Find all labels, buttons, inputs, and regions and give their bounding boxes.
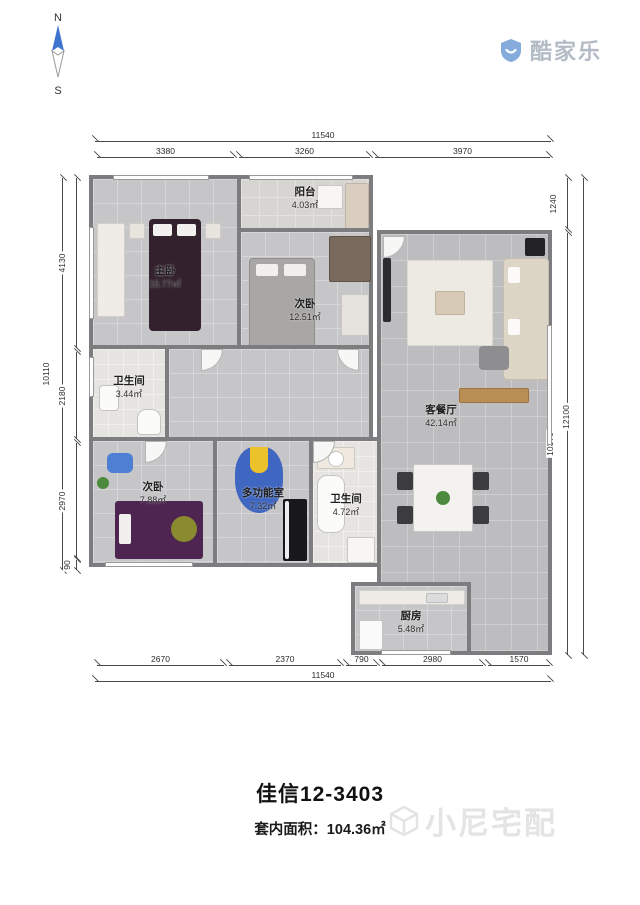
kitchen-sink: [426, 593, 448, 603]
wardrobe: [97, 223, 125, 317]
plan-title: 佳信12-3403: [0, 778, 640, 808]
kujiale-shield-icon: [498, 37, 524, 63]
dining-chair: [473, 472, 489, 490]
room-bathroom-1: 卫生间 3.44㎡: [89, 345, 169, 441]
dim-bottom-segment-4: 1570: [488, 665, 550, 666]
desk: [341, 294, 369, 336]
blanket: [171, 516, 197, 542]
bed: [149, 219, 201, 331]
room-master-bedroom: 主卧 15.77㎡: [89, 175, 241, 349]
dim-right-total: 12100: [583, 178, 584, 655]
ottoman: [479, 346, 509, 370]
dim-right-segment-1: 10370: [567, 233, 568, 655]
tv: [383, 258, 391, 322]
sink: [99, 385, 119, 411]
beanbag: [235, 447, 283, 513]
nightstand: [205, 223, 221, 239]
coffee-table: [435, 291, 465, 315]
window: [547, 325, 552, 445]
compass: N S: [46, 12, 70, 97]
room-area: 42.14㎡: [391, 418, 491, 430]
sofa: [503, 258, 549, 380]
piano: [283, 499, 307, 561]
fridge: [359, 620, 383, 650]
dim-top-total: 11540: [95, 141, 551, 142]
kitchen-counter: [359, 590, 465, 605]
pillow: [177, 224, 196, 236]
compass-north-label: N: [46, 12, 70, 24]
dim-bottom-total: 11540: [95, 681, 551, 682]
window: [249, 175, 353, 180]
plant: [97, 477, 109, 489]
dining-chair: [397, 472, 413, 490]
beanbag-stripe: [250, 447, 268, 473]
dining-chair: [473, 506, 489, 524]
dim-top-segment-0: 3380: [97, 157, 234, 158]
brand-logo: 酷家乐: [498, 34, 602, 66]
dim-left-segment-3: 90: [76, 560, 77, 570]
room-kitchen: 厨房 5.48㎡: [351, 582, 471, 655]
room-balcony: 阳台 4.03㎡: [237, 175, 373, 232]
pillow: [256, 264, 278, 276]
pillow: [284, 264, 306, 276]
window: [105, 562, 193, 567]
dim-bottom-segment-1: 2370: [229, 665, 341, 666]
pillow: [508, 319, 520, 335]
nightstand: [129, 223, 145, 239]
bathtub: [317, 475, 345, 533]
window: [381, 650, 451, 655]
dim-left-segment-2: 2970: [76, 443, 77, 558]
wardrobe: [329, 236, 371, 282]
plan-area-label: 套内面积：104.36㎡: [0, 818, 640, 839]
dim-bottom-segment-2: 790: [346, 665, 377, 666]
compass-needle-icon: [48, 24, 68, 80]
floorplan-page: N S 酷家乐 主卧 15.77㎡: [0, 0, 640, 905]
dining-chair: [397, 506, 413, 524]
bed: [115, 501, 203, 559]
washing-machine: [317, 185, 343, 209]
dim-top-segment-1: 3260: [239, 157, 370, 158]
dim-left-segment-1: 2180: [76, 352, 77, 439]
toilet: [137, 409, 161, 435]
floor-plan: 主卧 15.77㎡ 阳台 4.03㎡ 次卧 12.51㎡: [89, 175, 552, 655]
armchair: [107, 453, 133, 473]
piano-keys: [285, 501, 289, 559]
pillow: [508, 267, 520, 283]
window: [113, 175, 209, 180]
window: [89, 227, 94, 319]
rug: [407, 260, 493, 346]
dining-table: [413, 464, 473, 532]
room-name: 客餐厅: [391, 404, 491, 418]
dim-bottom-segment-3: 2980: [382, 665, 483, 666]
speaker: [525, 238, 545, 256]
dim-left-segment-0: 4130: [76, 178, 77, 348]
room-multi-function: 多功能室 7.32㎡: [213, 437, 313, 567]
pillow: [153, 224, 172, 236]
compass-south-label: S: [46, 85, 70, 97]
sideboard: [459, 388, 529, 403]
brand-name: 酷家乐: [530, 34, 602, 66]
table-plant: [436, 491, 450, 505]
window: [89, 357, 94, 397]
dim-right-segment-0: 1240: [567, 178, 568, 229]
dim-top-segment-2: 3970: [375, 157, 550, 158]
pillow: [119, 514, 131, 544]
room-name: 次卧: [93, 481, 213, 495]
balcony-cabinet: [345, 183, 369, 229]
dim-bottom-segment-0: 2670: [97, 665, 224, 666]
washing-machine: [347, 537, 375, 563]
